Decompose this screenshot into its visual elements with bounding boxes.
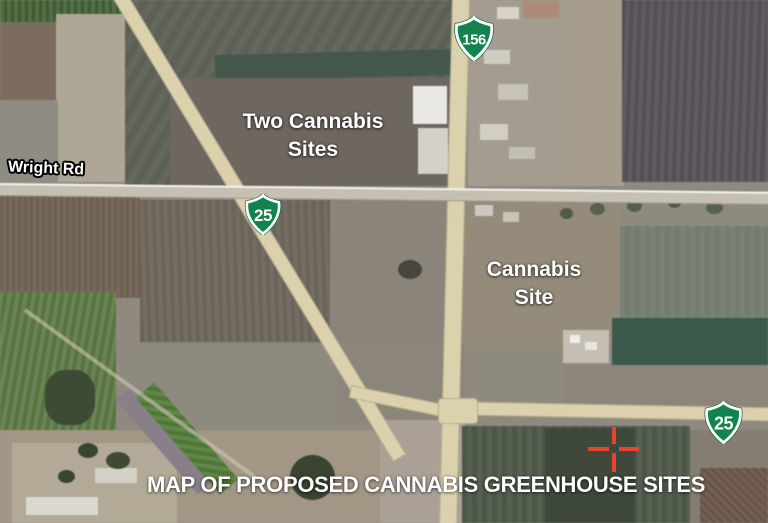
field-patch bbox=[0, 22, 58, 102]
building bbox=[498, 84, 528, 100]
building bbox=[95, 468, 137, 483]
crosshair-arm bbox=[619, 447, 639, 451]
tree bbox=[560, 208, 573, 219]
building bbox=[570, 335, 580, 343]
field-patch bbox=[566, 0, 624, 186]
route-number: 25 bbox=[254, 206, 272, 226]
building bbox=[480, 124, 508, 140]
pond bbox=[398, 260, 422, 279]
crosshair-arm bbox=[588, 447, 609, 451]
highway-156-shield-icon: 156 bbox=[452, 16, 496, 61]
building bbox=[413, 86, 447, 124]
building bbox=[475, 205, 493, 216]
tree bbox=[106, 452, 130, 469]
field-patch bbox=[0, 196, 145, 298]
field-patch bbox=[620, 226, 768, 320]
building bbox=[509, 147, 535, 159]
building bbox=[503, 212, 519, 222]
road-label-wright-rd: Wright Rd bbox=[8, 159, 85, 180]
tree bbox=[58, 470, 75, 483]
crosshair-arm bbox=[612, 453, 616, 472]
highway-25-shield-icon: 25 bbox=[702, 401, 745, 444]
tree bbox=[78, 443, 98, 458]
map-title-caption: MAP OF PROPOSED CANNABIS GREENHOUSE SITE… bbox=[147, 472, 705, 498]
crosshair-arm bbox=[612, 427, 616, 444]
crosshair-marker-icon bbox=[588, 427, 640, 473]
field-patch bbox=[140, 200, 330, 342]
tree bbox=[590, 203, 605, 215]
field-patch bbox=[700, 468, 768, 523]
road-junction bbox=[438, 398, 478, 424]
route-number: 156 bbox=[462, 31, 486, 48]
building bbox=[418, 128, 448, 174]
route-number: 25 bbox=[714, 413, 733, 434]
building bbox=[26, 497, 98, 515]
highway-25-shield-icon: 25 bbox=[243, 194, 283, 235]
aerial-map: 156 25 25 Wright Rd Two Cannabis Sites C… bbox=[0, 0, 768, 523]
field-patch bbox=[622, 0, 768, 182]
annotation-two-cannabis-sites: Two Cannabis Sites bbox=[230, 108, 396, 164]
tree-cluster bbox=[45, 370, 95, 425]
field-patch bbox=[612, 318, 768, 365]
building bbox=[497, 7, 519, 19]
building bbox=[523, 1, 559, 18]
satellite-imagery bbox=[0, 0, 768, 523]
annotation-cannabis-site: Cannabis Site bbox=[468, 256, 600, 312]
building bbox=[585, 342, 597, 350]
